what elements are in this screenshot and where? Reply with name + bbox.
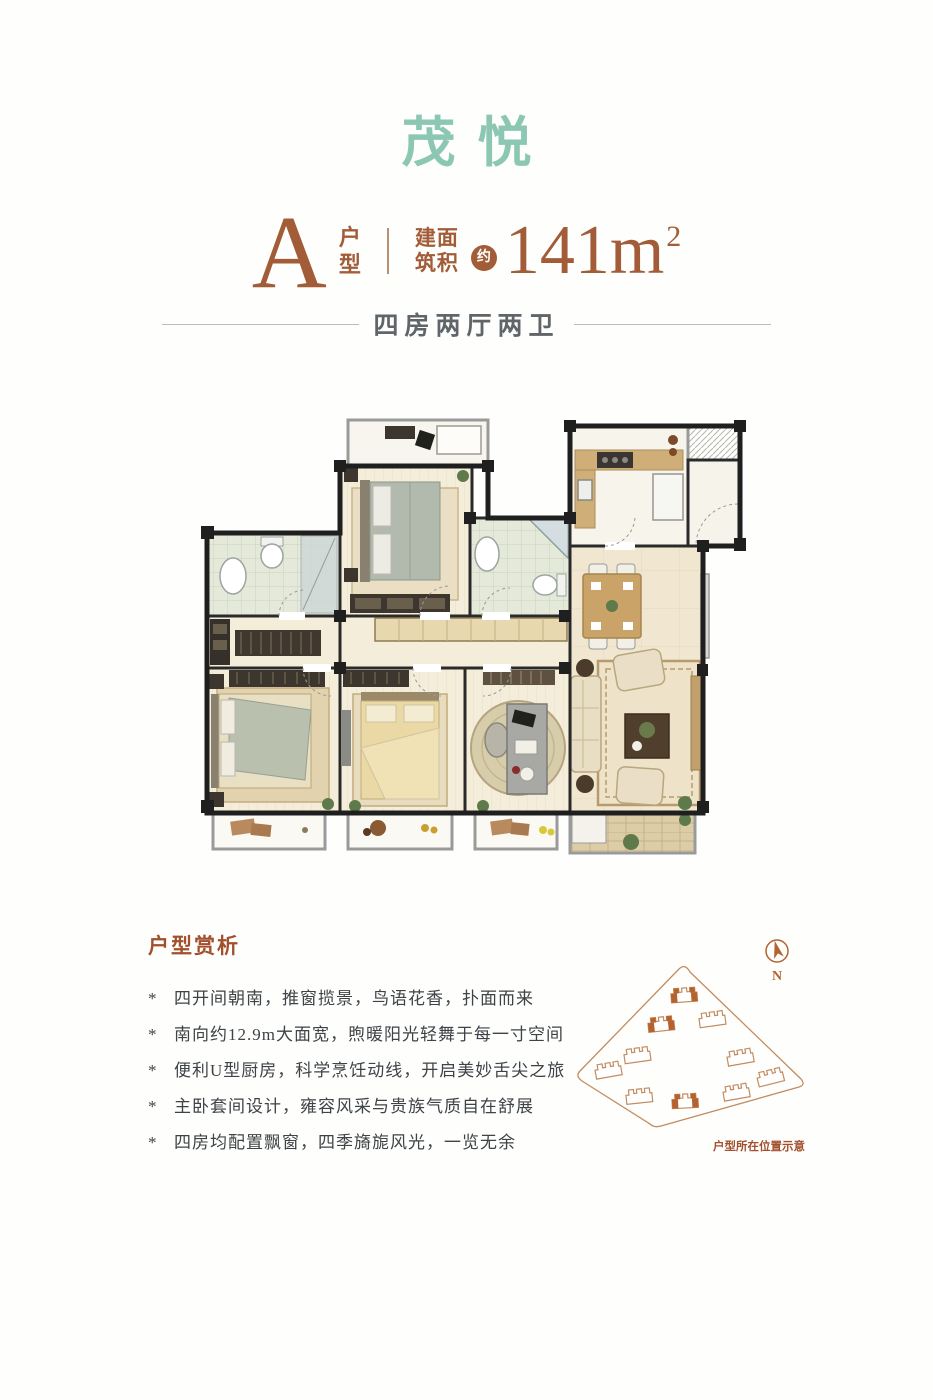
unit-info-row: A 户 型 建面 筑积 约 141m2 [0, 196, 933, 306]
room-study [465, 668, 570, 813]
building-icon-highlighted [671, 987, 698, 1003]
plant-icon [457, 470, 469, 482]
building-icon [726, 1048, 754, 1066]
feature-item: *四房均配置飘窗，四季旖旎风光，一览无余 [148, 1128, 608, 1164]
building-icon [722, 1083, 750, 1101]
living-balcony [570, 813, 695, 853]
area-exponent: 2 [666, 222, 681, 252]
brochure-page: 茂悦 A 户 型 建面 筑积 约 141m2 四房两厅两卫 [0, 0, 933, 1400]
project-title: 茂悦 [0, 98, 933, 177]
tray-icon [370, 820, 386, 836]
wardrobe-icon [235, 630, 321, 656]
room-kitchen [570, 426, 688, 546]
ac-platform [688, 426, 740, 460]
nightstand-icon [344, 568, 358, 582]
bay-window-master [213, 813, 325, 849]
building-icon-highlighted [647, 1016, 674, 1033]
features-section: 户型赏析 *四开间朝南，推窗揽景，鸟语花香，扑面而来 *南向约12.9m大面宽，… [148, 930, 608, 1164]
armchair-icon [612, 648, 666, 692]
sink-icon [220, 558, 246, 594]
bullet-marker: * [148, 989, 174, 1009]
building-icon [698, 1010, 726, 1027]
toilet-icon [533, 575, 557, 595]
room-dining-living [570, 546, 709, 813]
plant-icon [679, 814, 691, 826]
area-label: 建面 筑积 [415, 228, 459, 274]
room-entry [688, 426, 740, 546]
plant-icon [606, 600, 618, 612]
feature-item: *主卧套间设计，雍容风采与贵族气质自在舒展 [148, 1092, 608, 1128]
pillow-icon [404, 705, 434, 722]
building-icon [623, 1046, 651, 1063]
pillow-icon [366, 705, 396, 722]
approx-badge: 约 [471, 245, 497, 271]
room-dressing [207, 616, 340, 668]
bay-window-bedroom3 [348, 813, 452, 849]
jar-icon [668, 435, 678, 445]
floor-plan [185, 418, 748, 856]
plant-icon [623, 834, 639, 850]
room-corridor [340, 616, 570, 668]
armchair-icon [616, 766, 664, 805]
bullet-marker: * [148, 1025, 174, 1045]
feature-item: *便利U型厨房，科学烹饪动线，开启美妙舌尖之旅 [148, 1056, 608, 1092]
plant-icon [349, 800, 361, 812]
area-value: 141 [505, 216, 610, 286]
vertical-divider [387, 228, 389, 274]
bullet-marker: * [148, 1061, 174, 1081]
tv-console-icon [691, 676, 701, 770]
building-icon [594, 1061, 622, 1079]
left-rule [162, 324, 359, 325]
building-icon-highlighted [672, 1093, 699, 1108]
pillow-icon [250, 823, 271, 837]
building-icon [625, 1088, 652, 1105]
compass-label: N [772, 969, 782, 984]
nightstand-icon [344, 468, 358, 482]
pillow-icon [221, 700, 235, 734]
pillow-icon [373, 534, 391, 574]
room-bedroom2 [340, 466, 472, 616]
floor-plan-svg [185, 418, 748, 856]
sofa-icon [571, 676, 601, 772]
room-master-bedroom [207, 668, 340, 813]
buildings-layer [594, 987, 784, 1109]
feature-item: *南向约12.9m大面宽，煦暖阳光轻舞于每一寸空间 [148, 1020, 608, 1056]
fridge-icon [653, 474, 683, 520]
bay-window-study [475, 813, 557, 849]
plant-icon [477, 800, 489, 812]
side-table-icon [576, 775, 594, 793]
pillow-icon [373, 486, 391, 526]
layout-summary-row: 四房两厅两卫 [0, 310, 933, 338]
room-balcony-top [348, 420, 488, 466]
chair-icon [485, 723, 509, 757]
building-icon [756, 1067, 785, 1087]
unit-type-label: 户 型 [339, 227, 361, 276]
bullet-marker: * [148, 1133, 174, 1153]
pillow-icon [221, 742, 235, 776]
plant-icon [639, 722, 655, 738]
plant-icon [322, 798, 334, 810]
bed-headboard-icon [211, 694, 219, 788]
pillow-icon [510, 822, 529, 836]
feature-item: *四开间朝南，推窗揽景，鸟语花香，扑面而来 [148, 984, 608, 1020]
nightstand-icon [209, 674, 224, 689]
room-bathroom1 [207, 533, 340, 616]
site-plan-caption: 户型所在位置示意 [713, 1139, 805, 1153]
wardrobe-icon [229, 670, 325, 687]
bookshelf-icon [483, 670, 555, 685]
sink-icon [578, 480, 592, 500]
blanket-icon [229, 698, 311, 780]
area-unit: m [610, 216, 664, 286]
site-plan: N 户型所在位置示意 [560, 928, 830, 1168]
room-bedroom3 [340, 668, 465, 813]
bed-headboard-icon [360, 480, 370, 582]
side-table-icon [576, 659, 594, 677]
sink-icon [475, 537, 499, 571]
plant-icon [678, 796, 692, 810]
right-rule [574, 324, 771, 325]
features-heading: 户型赏析 [148, 930, 608, 960]
site-plan-svg: N 户型所在位置示意 [560, 928, 830, 1168]
bullet-marker: * [148, 1097, 174, 1117]
unit-letter: A [252, 209, 327, 297]
layout-summary: 四房两厅两卫 [373, 306, 559, 342]
compass-icon: N [766, 940, 788, 984]
room-bathroom2 [470, 518, 570, 616]
tv-cabinet-icon [342, 710, 351, 766]
area-figure: 141m2 [505, 216, 681, 286]
features-list: *四开间朝南，推窗揽景，鸟语花香，扑面而来 *南向约12.9m大面宽，煦暖阳光轻… [148, 984, 608, 1164]
toilet-icon [261, 544, 283, 568]
bed-headboard-icon [361, 692, 439, 701]
